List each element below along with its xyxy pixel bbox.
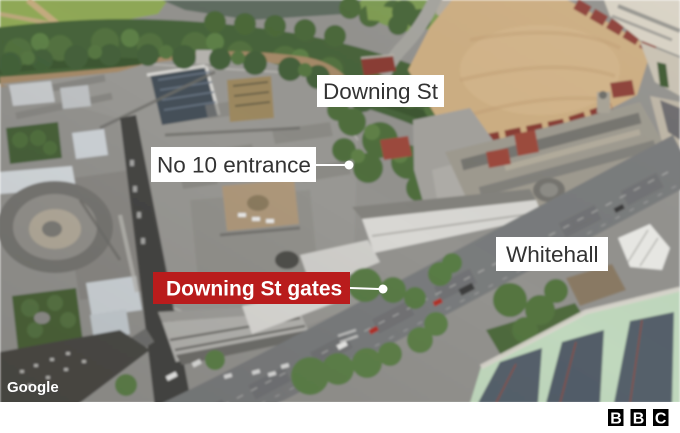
svg-text:B: B xyxy=(610,410,622,427)
svg-text:Whitehall: Whitehall xyxy=(506,242,599,267)
svg-text:B: B xyxy=(633,410,645,427)
svg-text:Google: Google xyxy=(7,379,59,396)
svg-text:Downing St gates: Downing St gates xyxy=(166,278,342,301)
svg-text:Downing St: Downing St xyxy=(323,79,439,104)
svg-text:C: C xyxy=(655,410,667,427)
svg-text:No 10 entrance: No 10 entrance xyxy=(157,153,311,178)
